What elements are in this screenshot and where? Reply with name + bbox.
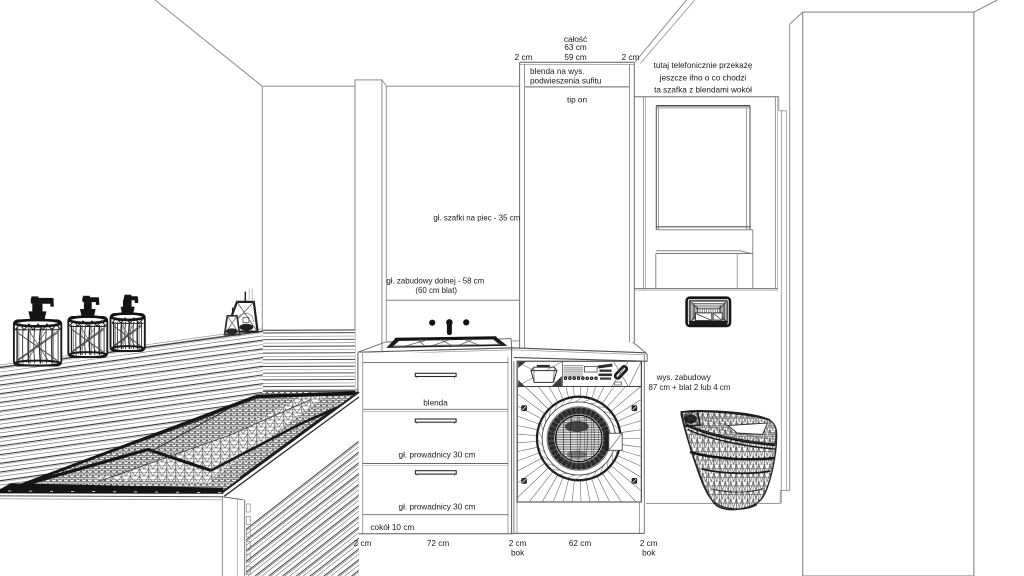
svg-text:tutaj telefonicznie przekażę: tutaj telefonicznie przekażę bbox=[654, 61, 753, 70]
svg-text:gł. szafki na piec - 35 cm: gł. szafki na piec - 35 cm bbox=[433, 213, 520, 222]
svg-text:bok: bok bbox=[511, 549, 525, 558]
svg-text:jeszcze ifno o co chodzi: jeszcze ifno o co chodzi bbox=[659, 73, 747, 82]
svg-text:podwieszenia sufitu: podwieszenia sufitu bbox=[530, 77, 602, 86]
svg-text:bok: bok bbox=[642, 549, 656, 558]
svg-text:2 cm: 2 cm bbox=[515, 53, 533, 62]
svg-text:2 cm: 2 cm bbox=[622, 53, 640, 62]
svg-text:62 cm: 62 cm bbox=[569, 539, 591, 548]
svg-text:blenda: blenda bbox=[423, 399, 448, 408]
svg-text:72 cm: 72 cm bbox=[427, 539, 449, 548]
svg-text:59 cm: 59 cm bbox=[564, 53, 586, 62]
svg-text:ta szafka z blendami wokół: ta szafka z blendami wokół bbox=[654, 86, 752, 95]
svg-text:gł. prowadnicy 30 cm: gł. prowadnicy 30 cm bbox=[399, 503, 476, 512]
svg-text:blenda na wys.: blenda na wys. bbox=[530, 67, 585, 76]
svg-text:2 cm: 2 cm bbox=[354, 539, 372, 548]
svg-text:87 cm + blat 2 lub 4 cm: 87 cm + blat 2 lub 4 cm bbox=[649, 383, 731, 392]
svg-text:wys. zabudowy: wys. zabudowy bbox=[656, 373, 711, 382]
svg-text:gł. prowadnicy 30 cm: gł. prowadnicy 30 cm bbox=[399, 451, 476, 460]
svg-text:2 cm: 2 cm bbox=[640, 539, 658, 548]
svg-text:tip on: tip on bbox=[567, 96, 587, 105]
svg-text:gł. zabudowy dolnej - 58 cm: gł. zabudowy dolnej - 58 cm bbox=[386, 277, 484, 286]
svg-text:2 cm: 2 cm bbox=[509, 539, 527, 548]
svg-text:cokół 10 cm: cokół 10 cm bbox=[370, 523, 414, 532]
svg-text:(60 cm blat): (60 cm blat) bbox=[415, 286, 457, 295]
svg-text:63 cm: 63 cm bbox=[564, 43, 586, 52]
